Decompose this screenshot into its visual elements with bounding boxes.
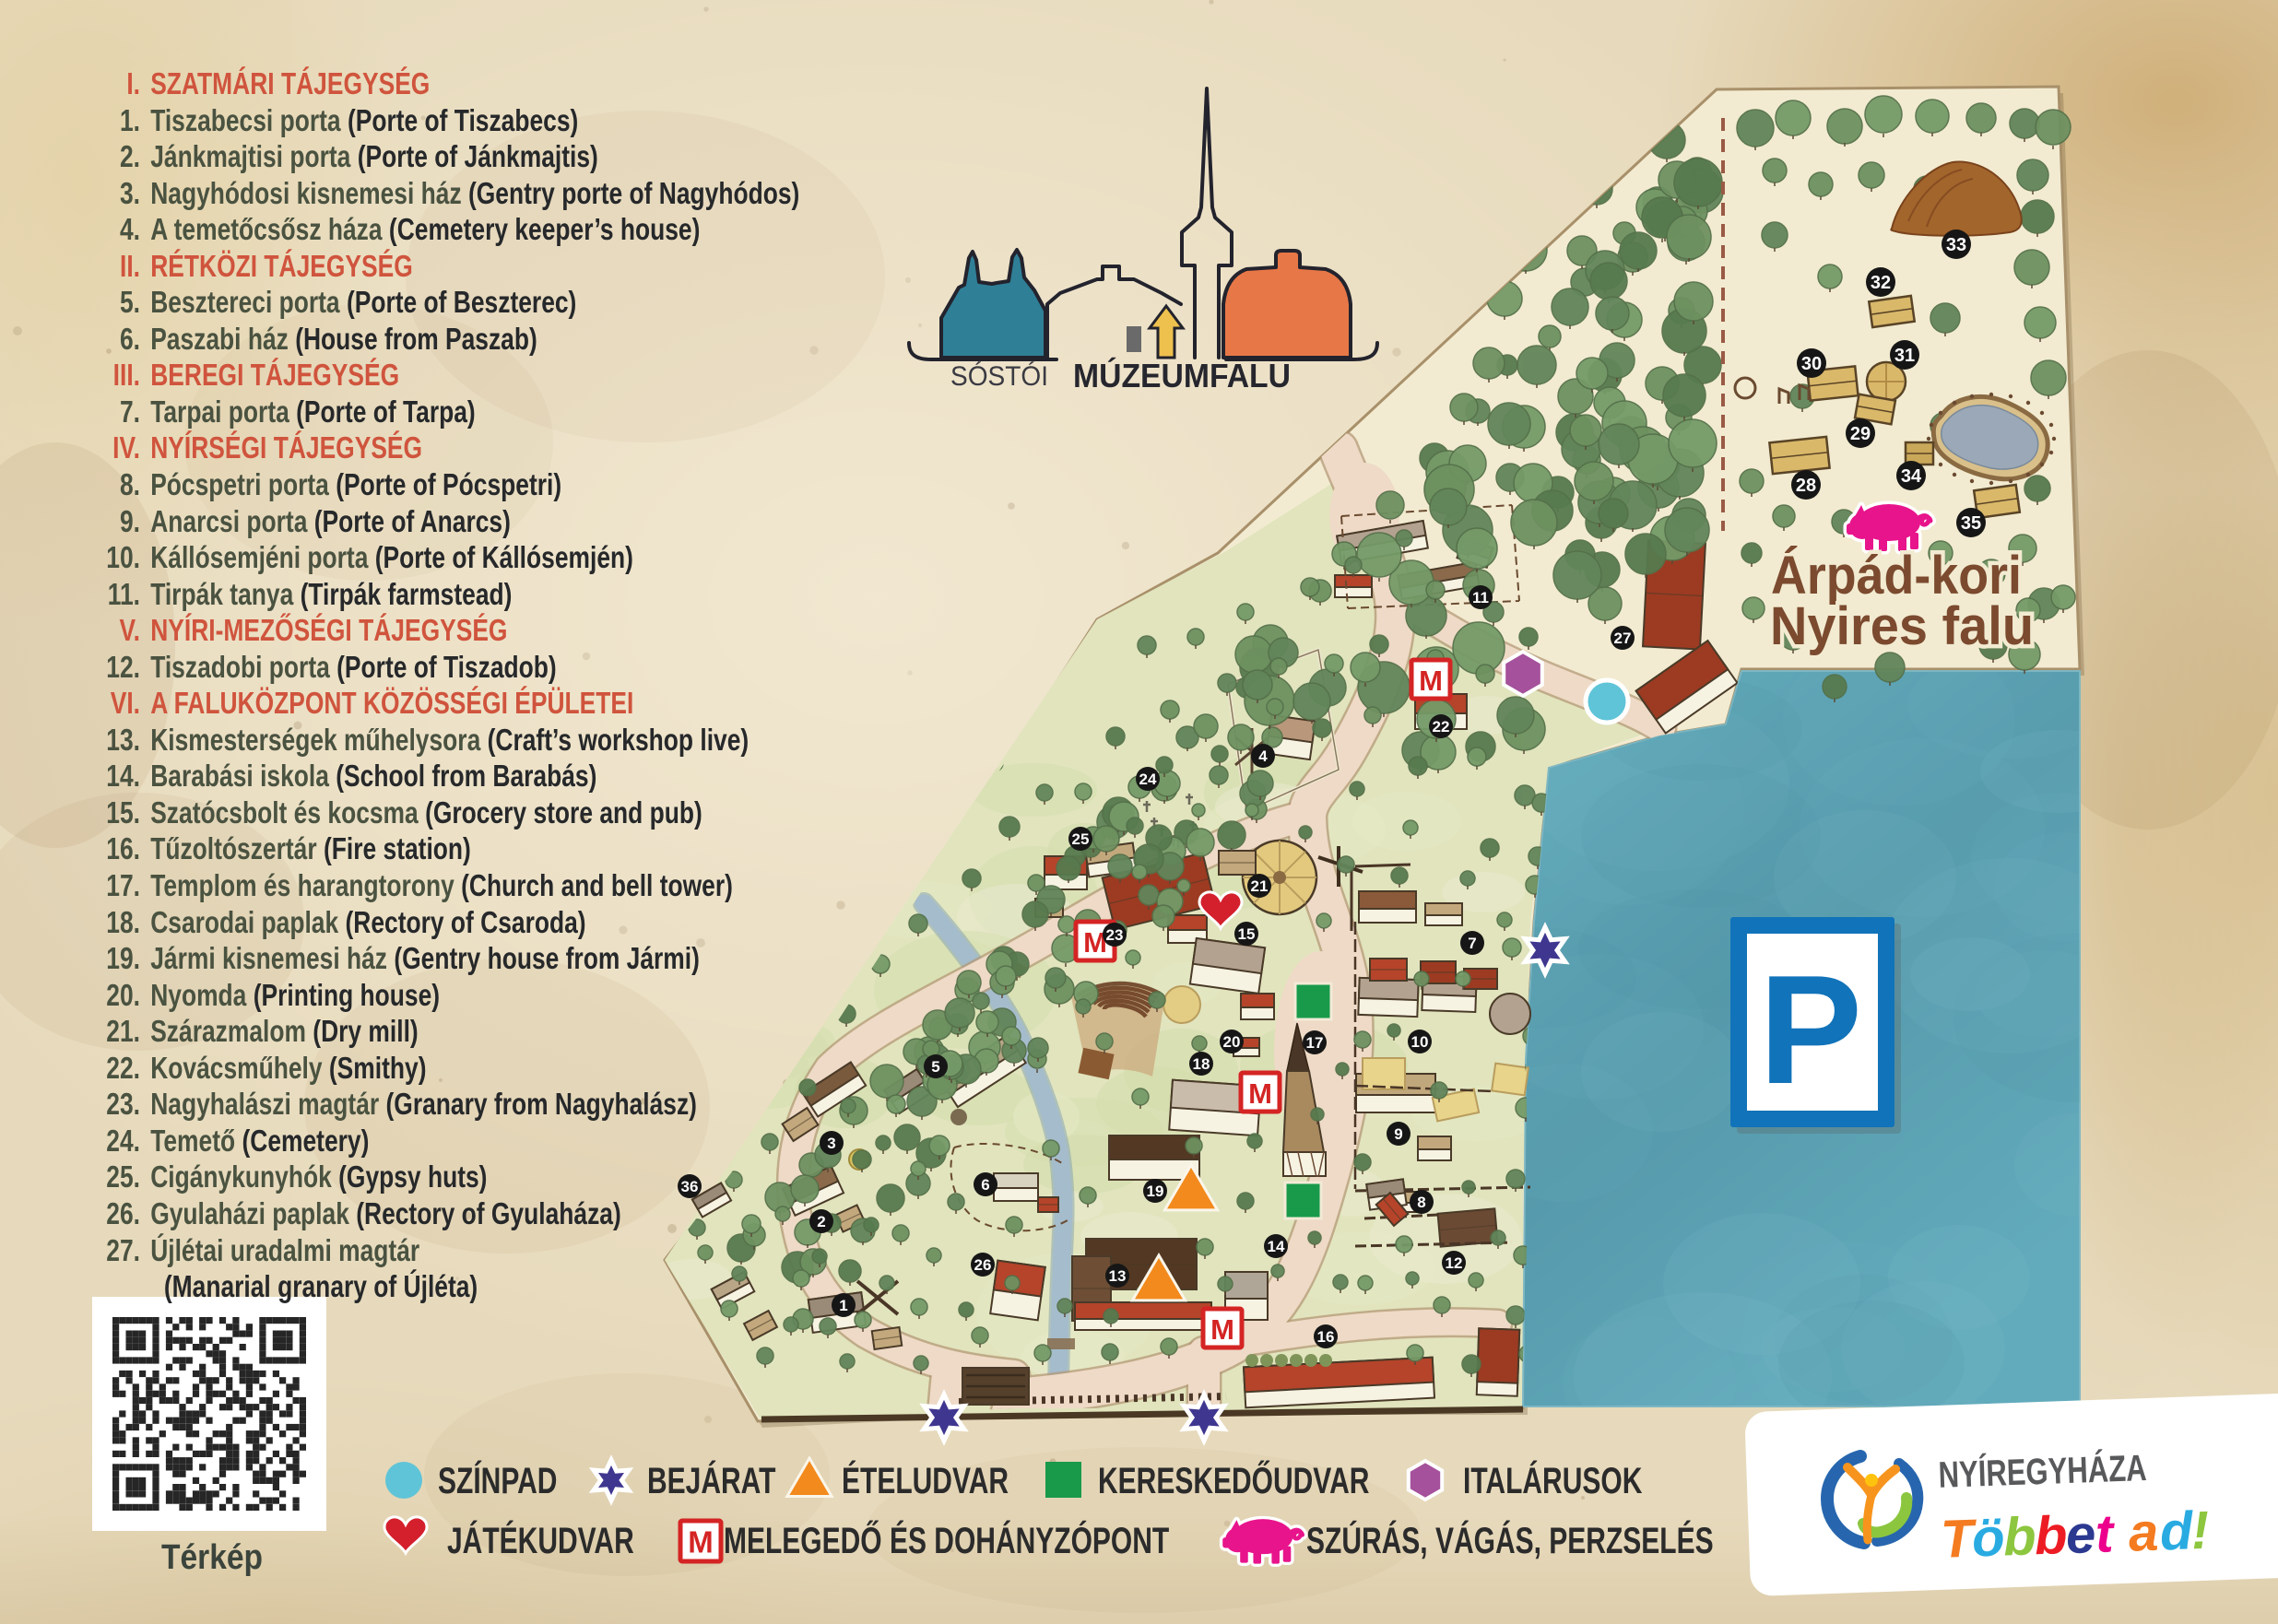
svg-text:NYÍREGYHÁZA: NYÍREGYHÁZA [1938, 1447, 2147, 1496]
svg-text:27: 27 [1614, 630, 1632, 647]
svg-text:23: 23 [1106, 926, 1124, 944]
svg-text:4: 4 [1258, 747, 1268, 765]
svg-text:15: 15 [1238, 925, 1256, 943]
svg-text:BEJÁRAT: BEJÁRAT [647, 1460, 776, 1501]
svg-text:M: M [1248, 1077, 1272, 1110]
svg-text:33: 33 [1946, 235, 1966, 255]
svg-text:30: 30 [1801, 354, 1822, 374]
svg-text:ÉTELUDVAR: ÉTELUDVAR [842, 1460, 1009, 1501]
svg-text:16: 16 [1317, 1328, 1335, 1346]
svg-text:11: 11 [1472, 589, 1489, 606]
svg-text:31: 31 [1894, 346, 1915, 366]
svg-text:18: 18 [1193, 1055, 1210, 1073]
svg-text:e: e [2065, 1504, 2097, 1565]
svg-text:P: P [1759, 943, 1862, 1116]
svg-text:MÚZEUMFALU: MÚZEUMFALU [1073, 356, 1291, 394]
svg-text:!: ! [2190, 1500, 2211, 1561]
svg-text:24: 24 [1139, 771, 1157, 788]
svg-text:12: 12 [1446, 1254, 1463, 1272]
svg-text:22: 22 [1433, 718, 1450, 736]
svg-text:Nyires falu: Nyires falu [1770, 596, 2034, 656]
svg-text:8: 8 [1417, 1194, 1425, 1211]
svg-text:28: 28 [1796, 476, 1816, 496]
svg-text:ö: ö [1971, 1507, 2006, 1568]
svg-text:SZÍNPAD: SZÍNPAD [438, 1460, 557, 1501]
svg-text:17: 17 [1306, 1034, 1324, 1052]
svg-text:SZÚRÁS, VÁGÁS, PERZSELÉS: SZÚRÁS, VÁGÁS, PERZSELÉS [1306, 1520, 1714, 1561]
svg-text:ITALÁRUSOK: ITALÁRUSOK [1463, 1460, 1643, 1501]
svg-text:b: b [2034, 1505, 2069, 1566]
svg-text:MELEGEDŐ ÉS DOHÁNYZÓPONT: MELEGEDŐ ÉS DOHÁNYZÓPONT [724, 1520, 1170, 1561]
svg-text:34: 34 [1901, 466, 1922, 487]
svg-text:35: 35 [1961, 513, 1981, 534]
svg-text:10: 10 [1411, 1033, 1429, 1051]
svg-text:21: 21 [1251, 877, 1269, 895]
svg-text:b: b [2002, 1506, 2037, 1567]
svg-text:M: M [1210, 1313, 1234, 1346]
svg-text:14: 14 [1268, 1238, 1285, 1255]
svg-text:7: 7 [1468, 935, 1476, 952]
svg-text:9: 9 [1394, 1125, 1402, 1143]
svg-text:M: M [688, 1524, 714, 1559]
svg-text:KERESKEDŐUDVAR: KERESKEDŐUDVAR [1098, 1460, 1369, 1501]
svg-text:13: 13 [1109, 1267, 1127, 1285]
svg-text:M: M [1419, 665, 1443, 697]
svg-text:a: a [2128, 1502, 2160, 1563]
svg-text:19: 19 [1147, 1183, 1164, 1200]
svg-text:32: 32 [1871, 273, 1891, 293]
svg-text:Térkép: Térkép [161, 1538, 263, 1577]
svg-text:29: 29 [1850, 424, 1871, 444]
svg-text:20: 20 [1223, 1033, 1241, 1051]
svg-text:JÁTÉKUDVAR: JÁTÉKUDVAR [447, 1520, 634, 1561]
